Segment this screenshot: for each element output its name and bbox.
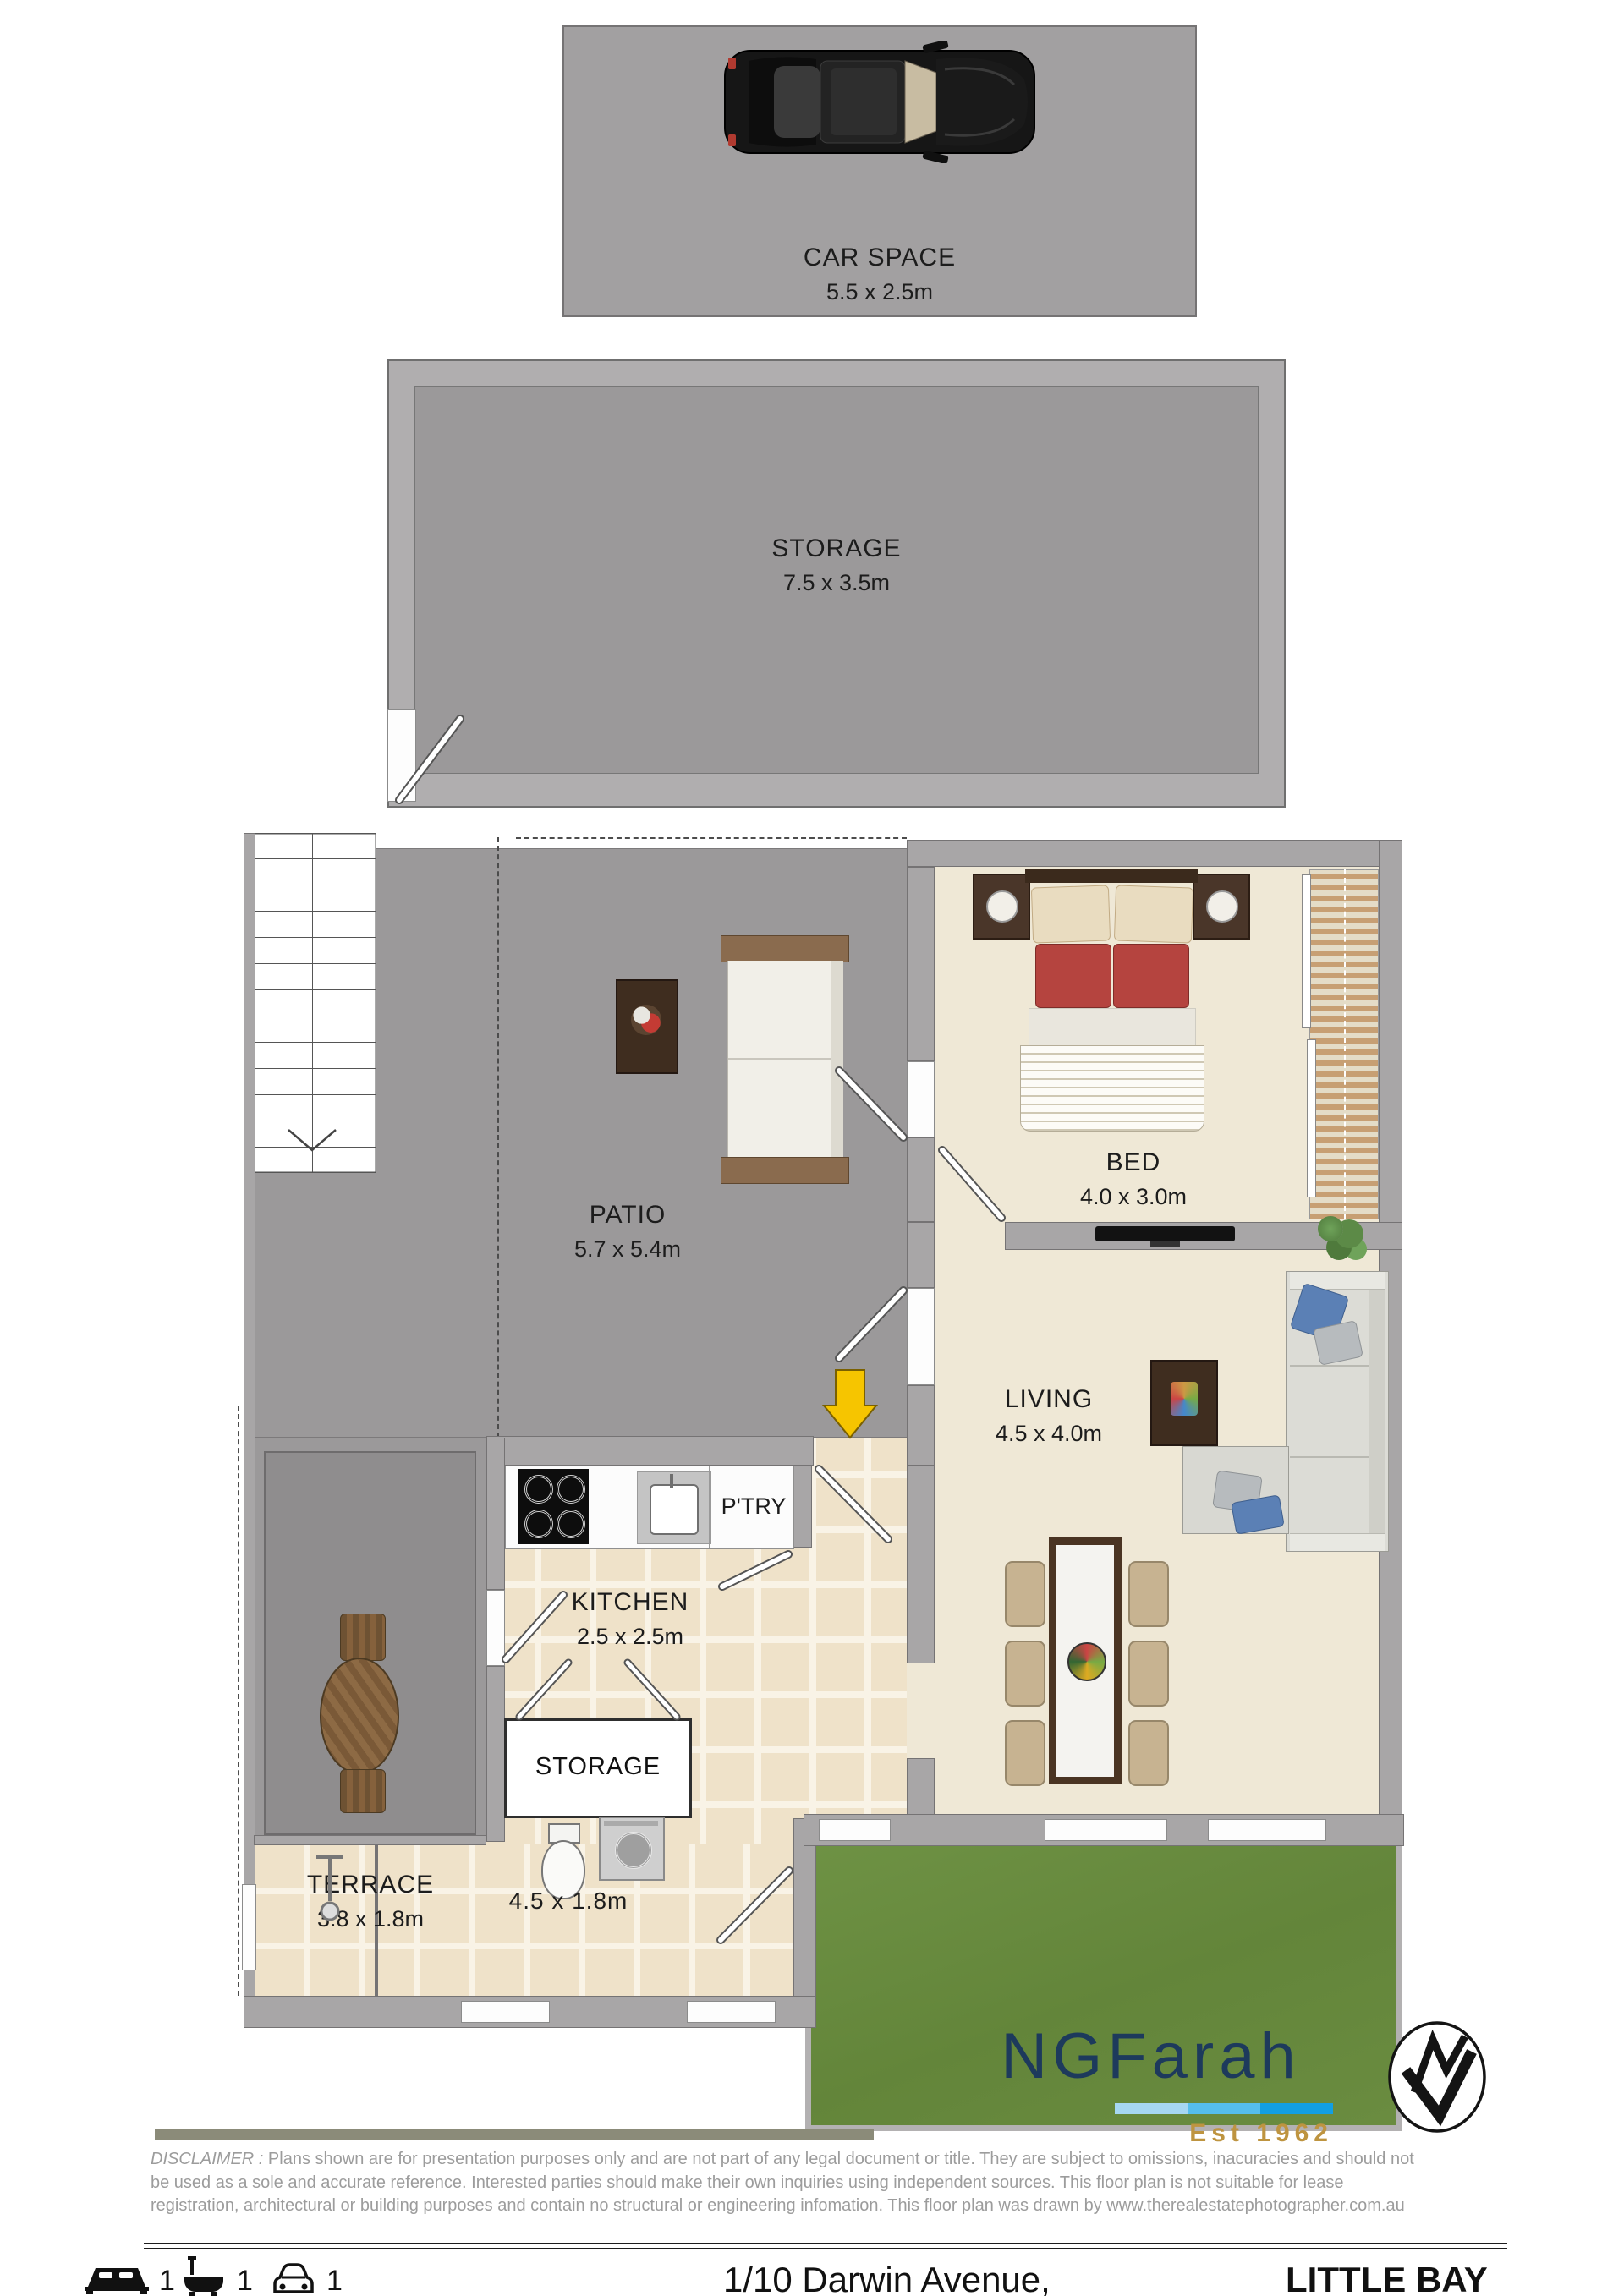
- property-address: 1/10 Darwin Avenue,: [723, 2260, 1051, 2296]
- disclaimer-line-1: DISCLAIMER : Plans shown are for present…: [151, 2148, 1473, 2172]
- bath-count: 1: [237, 2265, 253, 2296]
- car-count: 1: [326, 2265, 343, 2296]
- bath-count-icon: [181, 2256, 227, 2296]
- underline-segment-mid: [1188, 2103, 1260, 2114]
- agency-logo: NGFarah: [963, 2019, 1339, 2093]
- bed-count-icon: [85, 2260, 149, 2295]
- established-text: Est 1962: [1115, 2119, 1333, 2148]
- property-suburb: LITTLE BAY: [1286, 2260, 1488, 2296]
- agency-name: NGFarah: [1001, 2020, 1301, 2092]
- footer-double-rule: [144, 2243, 1507, 2249]
- established-label: Est 1962: [1189, 2119, 1333, 2147]
- floor-plan-page: CAR SPACE 5.5 x 2.5m STORAGE 7.5 x 3.5m: [0, 0, 1624, 2296]
- shower-icon: [316, 1857, 343, 1920]
- underline-segment-light: [1115, 2103, 1188, 2114]
- disclaimer-line-3: registration, architectural or building …: [151, 2195, 1473, 2218]
- car-count-icon: [269, 2261, 318, 2295]
- nv-emblem: [1384, 2018, 1490, 2136]
- logo-underline: [1115, 2103, 1333, 2114]
- underline-segment-dark: [1260, 2103, 1333, 2114]
- disclaimer-text-1: Plans shown are for presentation purpose…: [268, 2150, 1414, 2168]
- disclaimer-line-2: be used as a sole and accurate reference…: [151, 2172, 1473, 2195]
- disclaimer-block: DISCLAIMER : Plans shown are for present…: [151, 2148, 1473, 2218]
- stairs-arrow: [288, 1130, 336, 1150]
- disclaimer-label: DISCLAIMER :: [151, 2150, 263, 2168]
- divider-bar: [155, 2129, 874, 2140]
- entry-arrow: [824, 1370, 876, 1438]
- bed-count: 1: [159, 2265, 175, 2296]
- doors-overlay: [0, 0, 1624, 2296]
